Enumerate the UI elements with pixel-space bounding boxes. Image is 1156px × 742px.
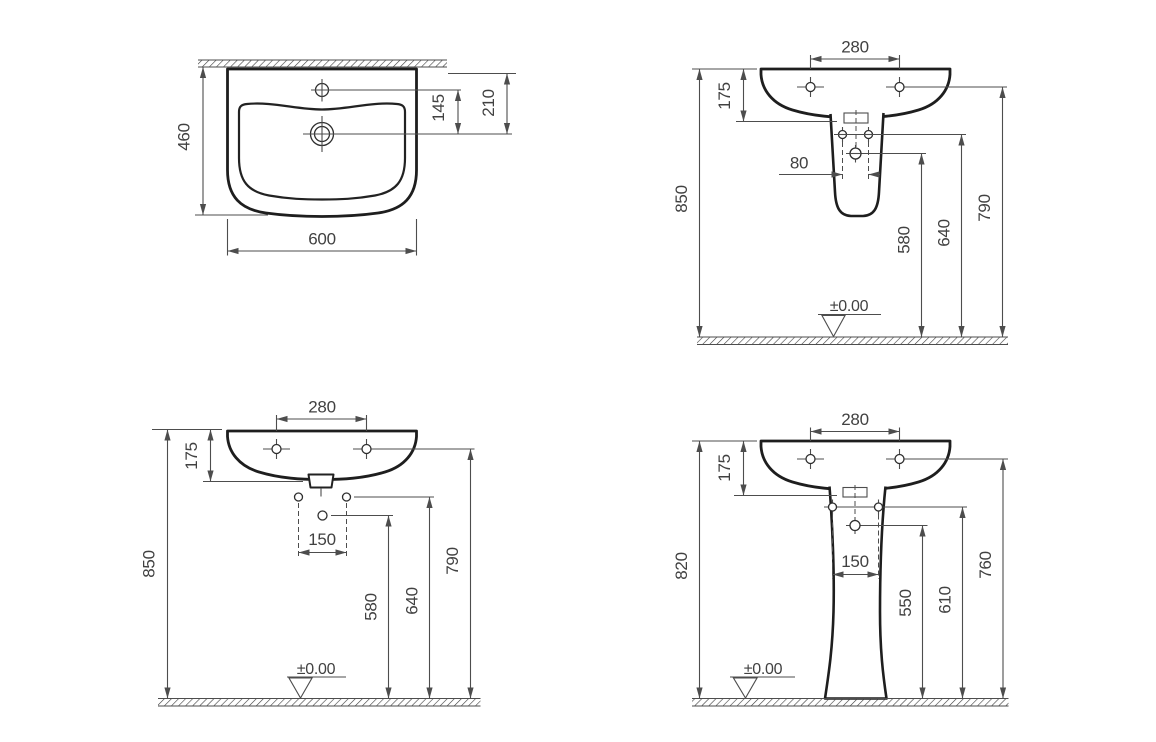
dim-790-label: 790	[443, 547, 462, 574]
dim-280-label: 280	[308, 398, 335, 417]
dim-790-front: 790	[443, 449, 471, 699]
dim-460-label: 460	[175, 123, 194, 150]
dim-760-label: 760	[976, 551, 995, 578]
ground-line-front	[158, 699, 481, 707]
dim-850-label: 850	[672, 185, 691, 212]
drain-outlet-front	[309, 475, 334, 497]
dim-610: 610	[936, 507, 963, 699]
dim-640-front: 640	[403, 497, 430, 699]
dim-150-label: 150	[308, 530, 335, 549]
pedestal-outline	[825, 487, 887, 699]
dim-145: 145	[429, 90, 458, 134]
datum-symbol-front: ±0.00	[287, 661, 346, 698]
dim-550: 550	[896, 526, 923, 699]
dim-175-label: 175	[182, 442, 201, 469]
plan-view: 460 600 145 210	[175, 60, 517, 256]
drawing-canvas: 460 600 145 210	[0, 0, 1156, 742]
dim-600: 600	[228, 219, 417, 256]
dim-580-semi: 580	[895, 154, 922, 338]
basin-outline-front	[228, 431, 417, 480]
datum-symbol-semi: ±0.00	[818, 298, 881, 337]
basin-front-view: 280 175 150 850 790 640 580	[140, 398, 481, 707]
dim-580-front: 580	[362, 516, 389, 699]
datum-label-front: ±0.00	[297, 661, 336, 678]
dim-280-semi: 280	[811, 38, 900, 70]
dim-640-label: 640	[935, 219, 954, 246]
dim-790-semi: 790	[975, 87, 1003, 337]
dim-150-label: 150	[841, 552, 868, 571]
dim-850-semi: 850	[672, 69, 700, 337]
ground-line-pedestal	[692, 699, 1009, 707]
washbasin-dimension-drawing: 460 600 145 210	[0, 0, 1156, 742]
semi-pedestal-outline	[831, 113, 884, 216]
datum-label-semi: ±0.00	[830, 298, 869, 315]
dim-820: 820	[672, 441, 700, 699]
waste-holes-front	[295, 493, 435, 520]
dim-145-label: 145	[429, 94, 448, 121]
dim-280-front: 280	[277, 398, 367, 432]
dim-820-label: 820	[672, 552, 691, 579]
datum-symbol-pedestal: ±0.00	[730, 661, 795, 698]
dim-760: 760	[976, 459, 1003, 699]
basin-outline-pedestal	[761, 441, 950, 490]
dim-550-label: 550	[896, 589, 915, 616]
dim-80-label: 80	[790, 154, 808, 173]
dim-580-label: 580	[362, 593, 381, 620]
ground-line-semi	[697, 337, 1008, 345]
dim-580-label: 580	[895, 226, 914, 253]
wall-section	[198, 60, 447, 67]
dim-280-pedestal: 280	[811, 410, 900, 441]
datum-label-pedestal: ±0.00	[744, 661, 783, 678]
dim-175-label: 175	[715, 454, 734, 481]
dim-280-label: 280	[841, 38, 868, 57]
dim-210-label: 210	[479, 89, 498, 116]
dim-175-label: 175	[715, 82, 734, 109]
full-pedestal-view: 280 175 150 820 760 610 550	[672, 410, 1009, 706]
dim-610-label: 610	[936, 586, 955, 613]
dim-850-label: 850	[140, 550, 159, 577]
dim-600-label: 600	[308, 230, 335, 249]
dim-850-front: 850	[140, 430, 168, 699]
dim-640-semi: 640	[935, 135, 962, 338]
dim-640-label: 640	[403, 587, 422, 614]
semi-pedestal-view: 280 175 80 850 790 640 580	[672, 38, 1008, 345]
dim-790-label: 790	[975, 194, 994, 221]
dim-280-label: 280	[841, 410, 868, 429]
